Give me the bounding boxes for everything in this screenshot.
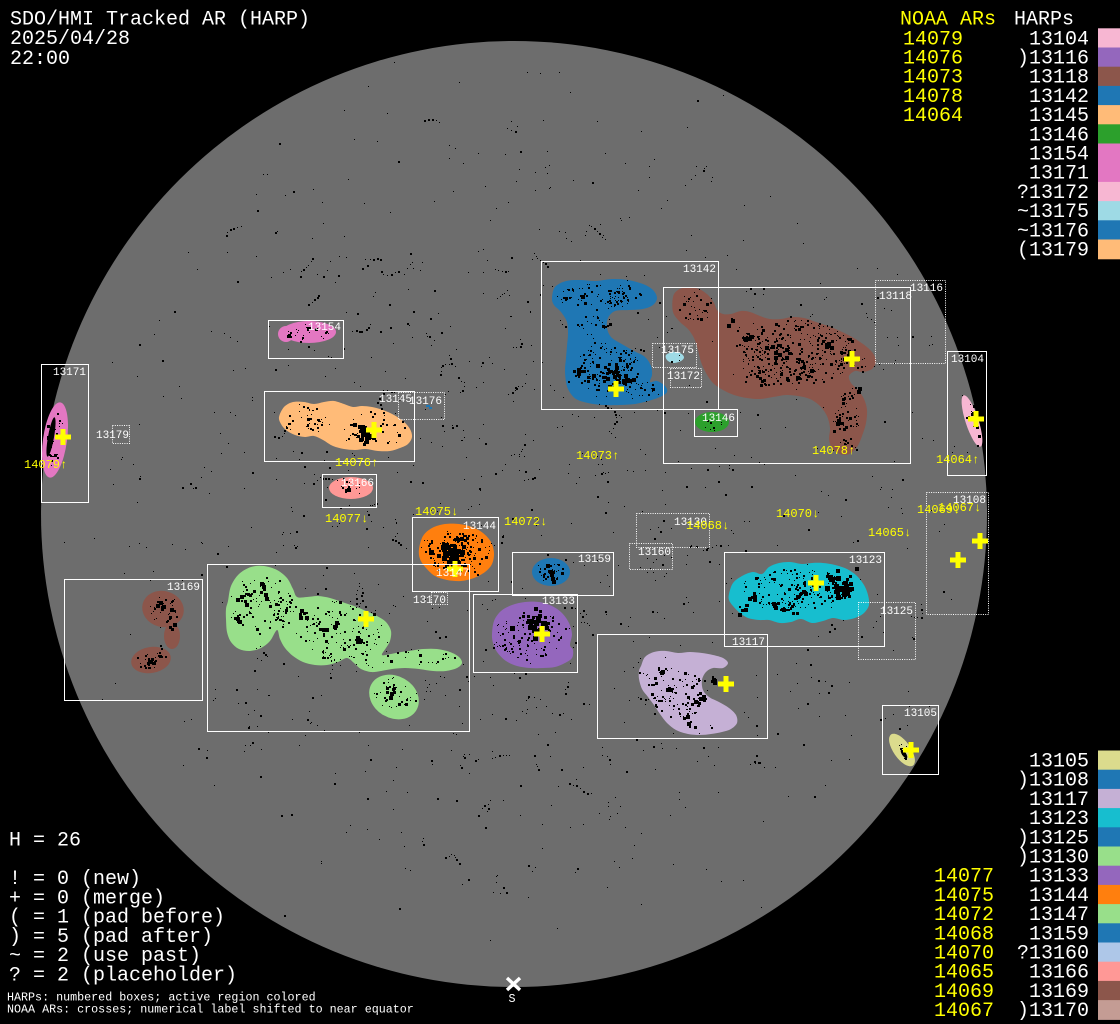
svg-text:)13170: )13170: [1017, 1000, 1089, 1023]
svg-text:13118: 13118: [879, 291, 912, 303]
svg-text:13133: 13133: [542, 596, 575, 608]
svg-text:13123: 13123: [849, 555, 882, 567]
svg-text:14072↓: 14072↓: [504, 515, 547, 529]
svg-text:13159: 13159: [578, 554, 611, 566]
svg-text:? = 2 (placeholder): ? = 2 (placeholder): [9, 964, 237, 987]
svg-text:13117: 13117: [732, 637, 765, 649]
svg-text:13125: 13125: [880, 606, 913, 618]
svg-text:14073↑: 14073↑: [576, 449, 619, 463]
svg-text:14068↓: 14068↓: [686, 519, 729, 533]
svg-text:13104: 13104: [951, 354, 984, 366]
svg-text:13170: 13170: [413, 595, 446, 607]
svg-text:13175: 13175: [661, 345, 694, 357]
svg-text:14078↑: 14078↑: [812, 444, 855, 458]
svg-text:(13179: (13179: [1017, 240, 1089, 263]
svg-text:13179: 13179: [96, 430, 129, 442]
svg-text:13147: 13147: [436, 568, 469, 580]
svg-text:14064: 14064: [903, 105, 963, 128]
svg-text:13154: 13154: [308, 322, 341, 334]
svg-text:13160: 13160: [638, 547, 671, 559]
svg-text:13172: 13172: [667, 371, 700, 383]
svg-text:22:00: 22:00: [10, 48, 70, 71]
svg-text:14076↑: 14076↑: [335, 456, 378, 470]
svg-text:S: S: [508, 992, 515, 1006]
svg-text:NOAA ARs: crosses; numerical l: NOAA ARs: crosses; numerical label shift…: [7, 1003, 414, 1017]
svg-text:14064↑: 14064↑: [936, 453, 979, 467]
svg-text:14067: 14067: [934, 1000, 994, 1023]
svg-text:13169: 13169: [167, 582, 200, 594]
svg-text:14077↓: 14077↓: [325, 512, 368, 526]
svg-text:14070↓: 14070↓: [776, 507, 819, 521]
svg-text:13176: 13176: [409, 396, 442, 408]
svg-text:13142: 13142: [683, 264, 716, 276]
svg-text:14065↓: 14065↓: [868, 526, 911, 540]
svg-text:14079↑: 14079↑: [24, 458, 67, 472]
svg-text:14075↓: 14075↓: [415, 505, 458, 519]
svg-text:13145: 13145: [379, 394, 412, 406]
svg-text:13105: 13105: [904, 708, 937, 720]
svg-text:H = 26: H = 26: [9, 830, 81, 853]
svg-text:13171: 13171: [53, 367, 86, 379]
svg-text:13166: 13166: [341, 478, 374, 490]
svg-text:13116: 13116: [910, 283, 943, 295]
svg-text:13146: 13146: [702, 413, 735, 425]
svg-text:13144: 13144: [463, 521, 496, 533]
svg-text:14069↓: 14069↓: [917, 503, 960, 517]
